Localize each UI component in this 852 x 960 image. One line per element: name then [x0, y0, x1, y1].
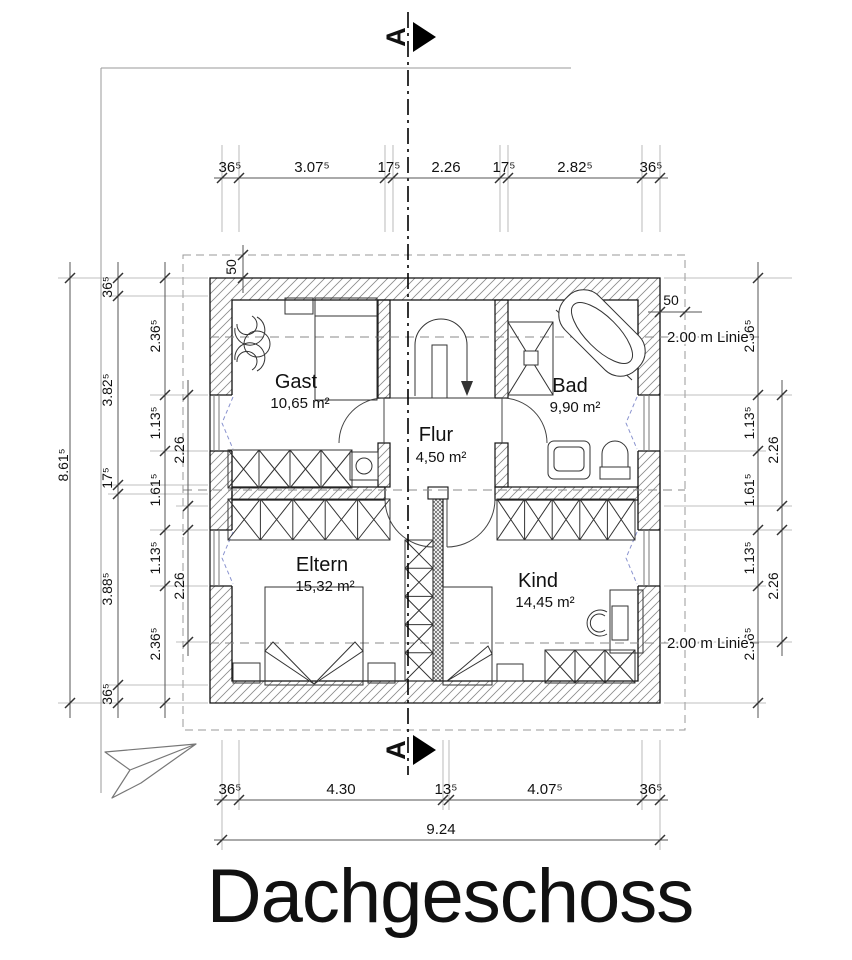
- kind-bed: [443, 587, 492, 685]
- window-kind: [626, 530, 662, 586]
- dimension-chain-bottom: 36⁵ 4.30 13⁵ 4.07⁵ 36⁵ 9.24: [214, 740, 668, 850]
- room-name-bad: Bad: [552, 375, 588, 397]
- section-label-top: A: [381, 27, 411, 47]
- room-name-kind: Kind: [518, 570, 558, 592]
- dim-label: 2.36⁵: [147, 319, 163, 352]
- dim-label: 1.13⁵: [147, 406, 163, 439]
- eltern-bed: [265, 587, 363, 685]
- dim-label: 1.61⁵: [741, 473, 757, 506]
- dim-label: 36⁵: [640, 159, 663, 176]
- shower: [508, 322, 553, 395]
- dim-eaves-right: 50: [663, 292, 679, 308]
- room-area-bad: 9,90 m²: [550, 399, 601, 416]
- dim-label: 2.26: [171, 436, 187, 463]
- dim-label: 2.82⁵: [557, 159, 592, 176]
- room-area-flur: 4,50 m²: [416, 449, 467, 466]
- floorplan-drawing: A A Gast 10,65 m² Flur 4,50 m² Bad 9,90 …: [0, 0, 852, 960]
- dim-label: 17⁵: [378, 159, 401, 176]
- dim-label: 1.13⁵: [741, 406, 757, 439]
- nightstand: [233, 663, 260, 683]
- dim-total-width: 9.24: [426, 821, 455, 838]
- dim-label: 1.13⁵: [741, 541, 757, 574]
- wardrobe-gast: [228, 450, 352, 488]
- dim-label: 1.13⁵: [147, 541, 163, 574]
- dim-eaves-top: 50: [223, 259, 239, 275]
- toilet: [600, 441, 630, 479]
- dim-label: 4.30: [326, 781, 355, 798]
- dim-label: 2.26: [431, 159, 460, 176]
- height-line-label-top: 2.00 m Linie: [667, 329, 749, 346]
- arrowhead: [461, 381, 473, 396]
- dim-label: 2.26: [765, 572, 781, 599]
- door-gast: [339, 398, 384, 443]
- window-gast: [209, 395, 234, 451]
- dim-label: 4.07⁵: [527, 781, 562, 798]
- dim-label: 3.82⁵: [99, 373, 115, 406]
- floorplan-sheet: A A Gast 10,65 m² Flur 4,50 m² Bad 9,90 …: [0, 0, 852, 960]
- blanket-fold: [265, 642, 314, 684]
- blanket-fold: [314, 642, 363, 684]
- door-bad: [502, 398, 547, 443]
- dim-label: 36⁵: [640, 781, 663, 798]
- section-arrow-icon: [413, 735, 436, 765]
- height-line-label-bottom: 2.00 m Linie: [667, 635, 749, 652]
- page-title: Dachgeschoss: [207, 854, 694, 939]
- staircase: [390, 319, 495, 398]
- dim-label: 36⁵: [219, 781, 242, 798]
- wardrobe-eltern-top: [228, 499, 390, 540]
- desk-chair: [587, 610, 607, 636]
- dim-label: 1.61⁵: [147, 473, 163, 506]
- dim-label: 17⁵: [493, 159, 516, 176]
- door-kind: [447, 499, 495, 547]
- dim-label: 2.36⁵: [147, 627, 163, 660]
- room-name-flur: Flur: [419, 424, 454, 446]
- dim-label: 3.07⁵: [294, 159, 329, 176]
- wardrobe-kind-bottom: [545, 650, 635, 683]
- dim-label: 36⁵: [219, 159, 242, 176]
- washing-machine: [350, 452, 378, 480]
- sink: [548, 441, 590, 479]
- eltern-furniture: [233, 587, 395, 685]
- round-table: [244, 331, 270, 357]
- wardrobe-kind-top: [497, 499, 635, 540]
- blanket-fold: [447, 646, 492, 681]
- gast-bed: [315, 298, 377, 400]
- dim-label: 2.26: [171, 572, 187, 599]
- section-arrow-icon: [413, 22, 436, 52]
- room-area-gast: 10,65 m²: [270, 395, 329, 412]
- monitor: [612, 606, 628, 640]
- north-arrow-icon: [105, 744, 196, 798]
- window-bad: [626, 395, 662, 451]
- room-name-gast: Gast: [275, 371, 318, 393]
- dim-label: 36⁵: [99, 683, 115, 704]
- nightstand: [368, 663, 395, 683]
- room-area-eltern: 15,32 m²: [295, 578, 354, 595]
- dim-label: 3.88⁵: [99, 572, 115, 605]
- chair: [235, 316, 265, 345]
- section-label-bottom: A: [381, 740, 411, 760]
- dim-total-height: 8.61⁵: [55, 448, 71, 481]
- dimension-chain-top: 36⁵ 3.07⁵ 17⁵ 2.26 17⁵ 2.82⁵ 36⁵: [214, 145, 668, 232]
- room-name-eltern: Eltern: [296, 554, 348, 576]
- dim-label: 17⁵: [99, 467, 115, 488]
- partition-wall: [433, 499, 443, 681]
- shelf: [497, 664, 523, 681]
- dim-label: 2.26: [765, 436, 781, 463]
- room-area-kind: 14,45 m²: [515, 594, 574, 611]
- dim-label: 13⁵: [435, 781, 458, 798]
- wardrobe-eltern-side: [405, 540, 433, 681]
- dim-label: 36⁵: [99, 276, 115, 297]
